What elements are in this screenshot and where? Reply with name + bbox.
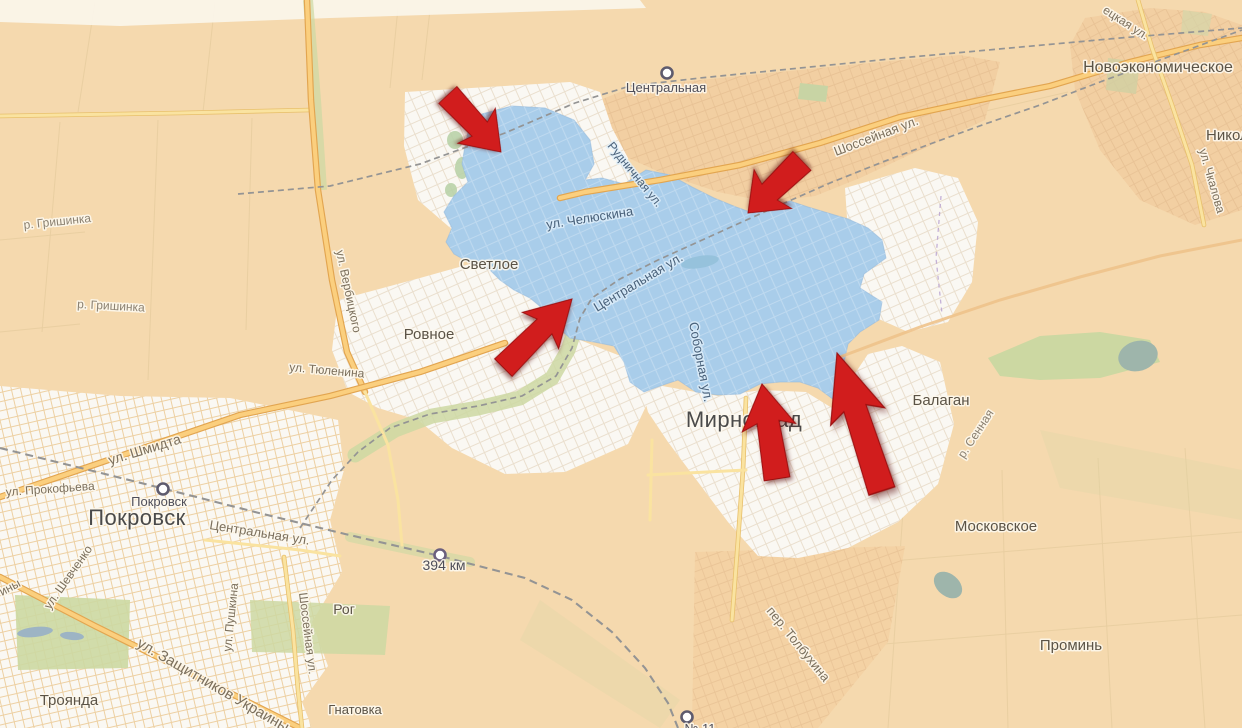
settlement-label: Гнатовка [328,702,382,717]
settlement-label: Проминь [1040,637,1102,654]
station-label: Покровск [131,494,187,509]
settlement-label: Балаган [912,392,969,409]
map-svg: Новоэкономическое Никол Светлое Ровное М… [0,0,1242,728]
settlement-label: Новоэкономическое [1083,59,1233,76]
station-label: Центральная [626,80,706,95]
station-label: № 11 [684,721,715,728]
settlement-label: Троянда [40,692,99,709]
railway-station-icon [158,484,169,495]
settlement-label: Светлое [460,256,519,273]
station-label: 394 км [423,557,466,573]
settlement-label: Рог [333,601,355,617]
settlement-label: Никол [1206,127,1242,144]
railway-station-icon [662,68,673,79]
map-canvas[interactable]: Новоэкономическое Никол Светлое Ровное М… [0,0,1242,728]
settlement-label: Ровное [404,326,455,343]
settlement-label: Московское [955,518,1037,535]
